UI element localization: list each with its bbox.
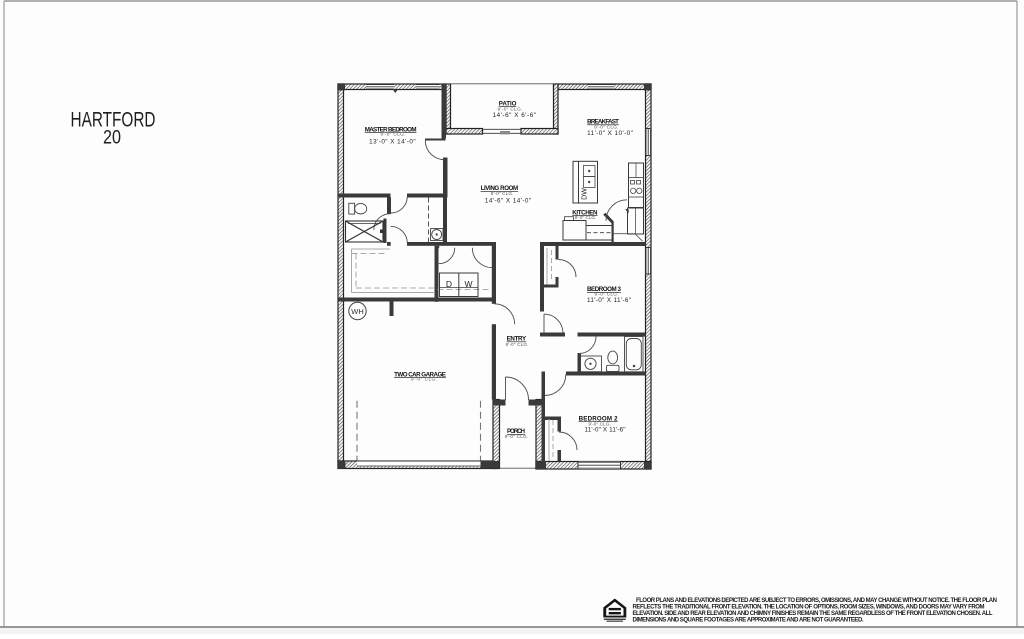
svg-text:D: D xyxy=(446,279,452,289)
svg-text:9'-0" CLG.: 9'-0" CLG. xyxy=(381,132,406,137)
svg-text:DW: DW xyxy=(582,188,589,200)
svg-text:9'-0" CLG.: 9'-0" CLG. xyxy=(575,215,597,220)
svg-text:14'-6" X 14'-0": 14'-6" X 14'-0" xyxy=(485,198,531,205)
svg-text:11'-0" X 11'-6": 11'-0" X 11'-6" xyxy=(585,426,626,433)
svg-text:9'-0" CLG.: 9'-0" CLG. xyxy=(505,434,529,439)
svg-text:13'-0" X 14'-0": 13'-0" X 14'-0" xyxy=(369,138,416,145)
svg-text:20: 20 xyxy=(103,128,121,149)
svg-text:9'-0" CLG.: 9'-0" CLG. xyxy=(595,292,619,297)
svg-text:REFLECTS THE TRADITIONAL FRONT: REFLECTS THE TRADITIONAL FRONT ELEVATION… xyxy=(633,604,985,610)
svg-text:FLOOR PLANS AND ELEVATIONS DEP: FLOOR PLANS AND ELEVATIONS DEPICTED ARE … xyxy=(636,598,997,604)
svg-text:9'-0" CLG.: 9'-0" CLG. xyxy=(498,106,523,111)
svg-text:9'-0" CLG.: 9'-0" CLG. xyxy=(491,191,514,196)
svg-text:9'-0" CLG.: 9'-0" CLG. xyxy=(594,125,618,130)
svg-text:11'-0" X 11'-6": 11'-0" X 11'-6" xyxy=(587,297,631,304)
svg-text:14'-6" X 6'-6": 14'-6" X 6'-6" xyxy=(493,112,536,119)
svg-text:W: W xyxy=(464,279,472,289)
svg-text:9'-0" CLG.: 9'-0" CLG. xyxy=(506,342,529,347)
svg-text:DIMENSIONS AND SQUARE FOOTAGES: DIMENSIONS AND SQUARE FOOTAGES ARE APPRO… xyxy=(633,617,864,623)
svg-text:ELEVATION. SIDE AND REAR ELEVA: ELEVATION. SIDE AND REAR ELEVATION AND C… xyxy=(633,611,993,617)
svg-text:9'-0" CLG.: 9'-0" CLG. xyxy=(411,377,437,382)
svg-text:WH: WH xyxy=(351,307,364,316)
svg-text:11'-0" X 10'-0": 11'-0" X 10'-0" xyxy=(587,130,633,137)
